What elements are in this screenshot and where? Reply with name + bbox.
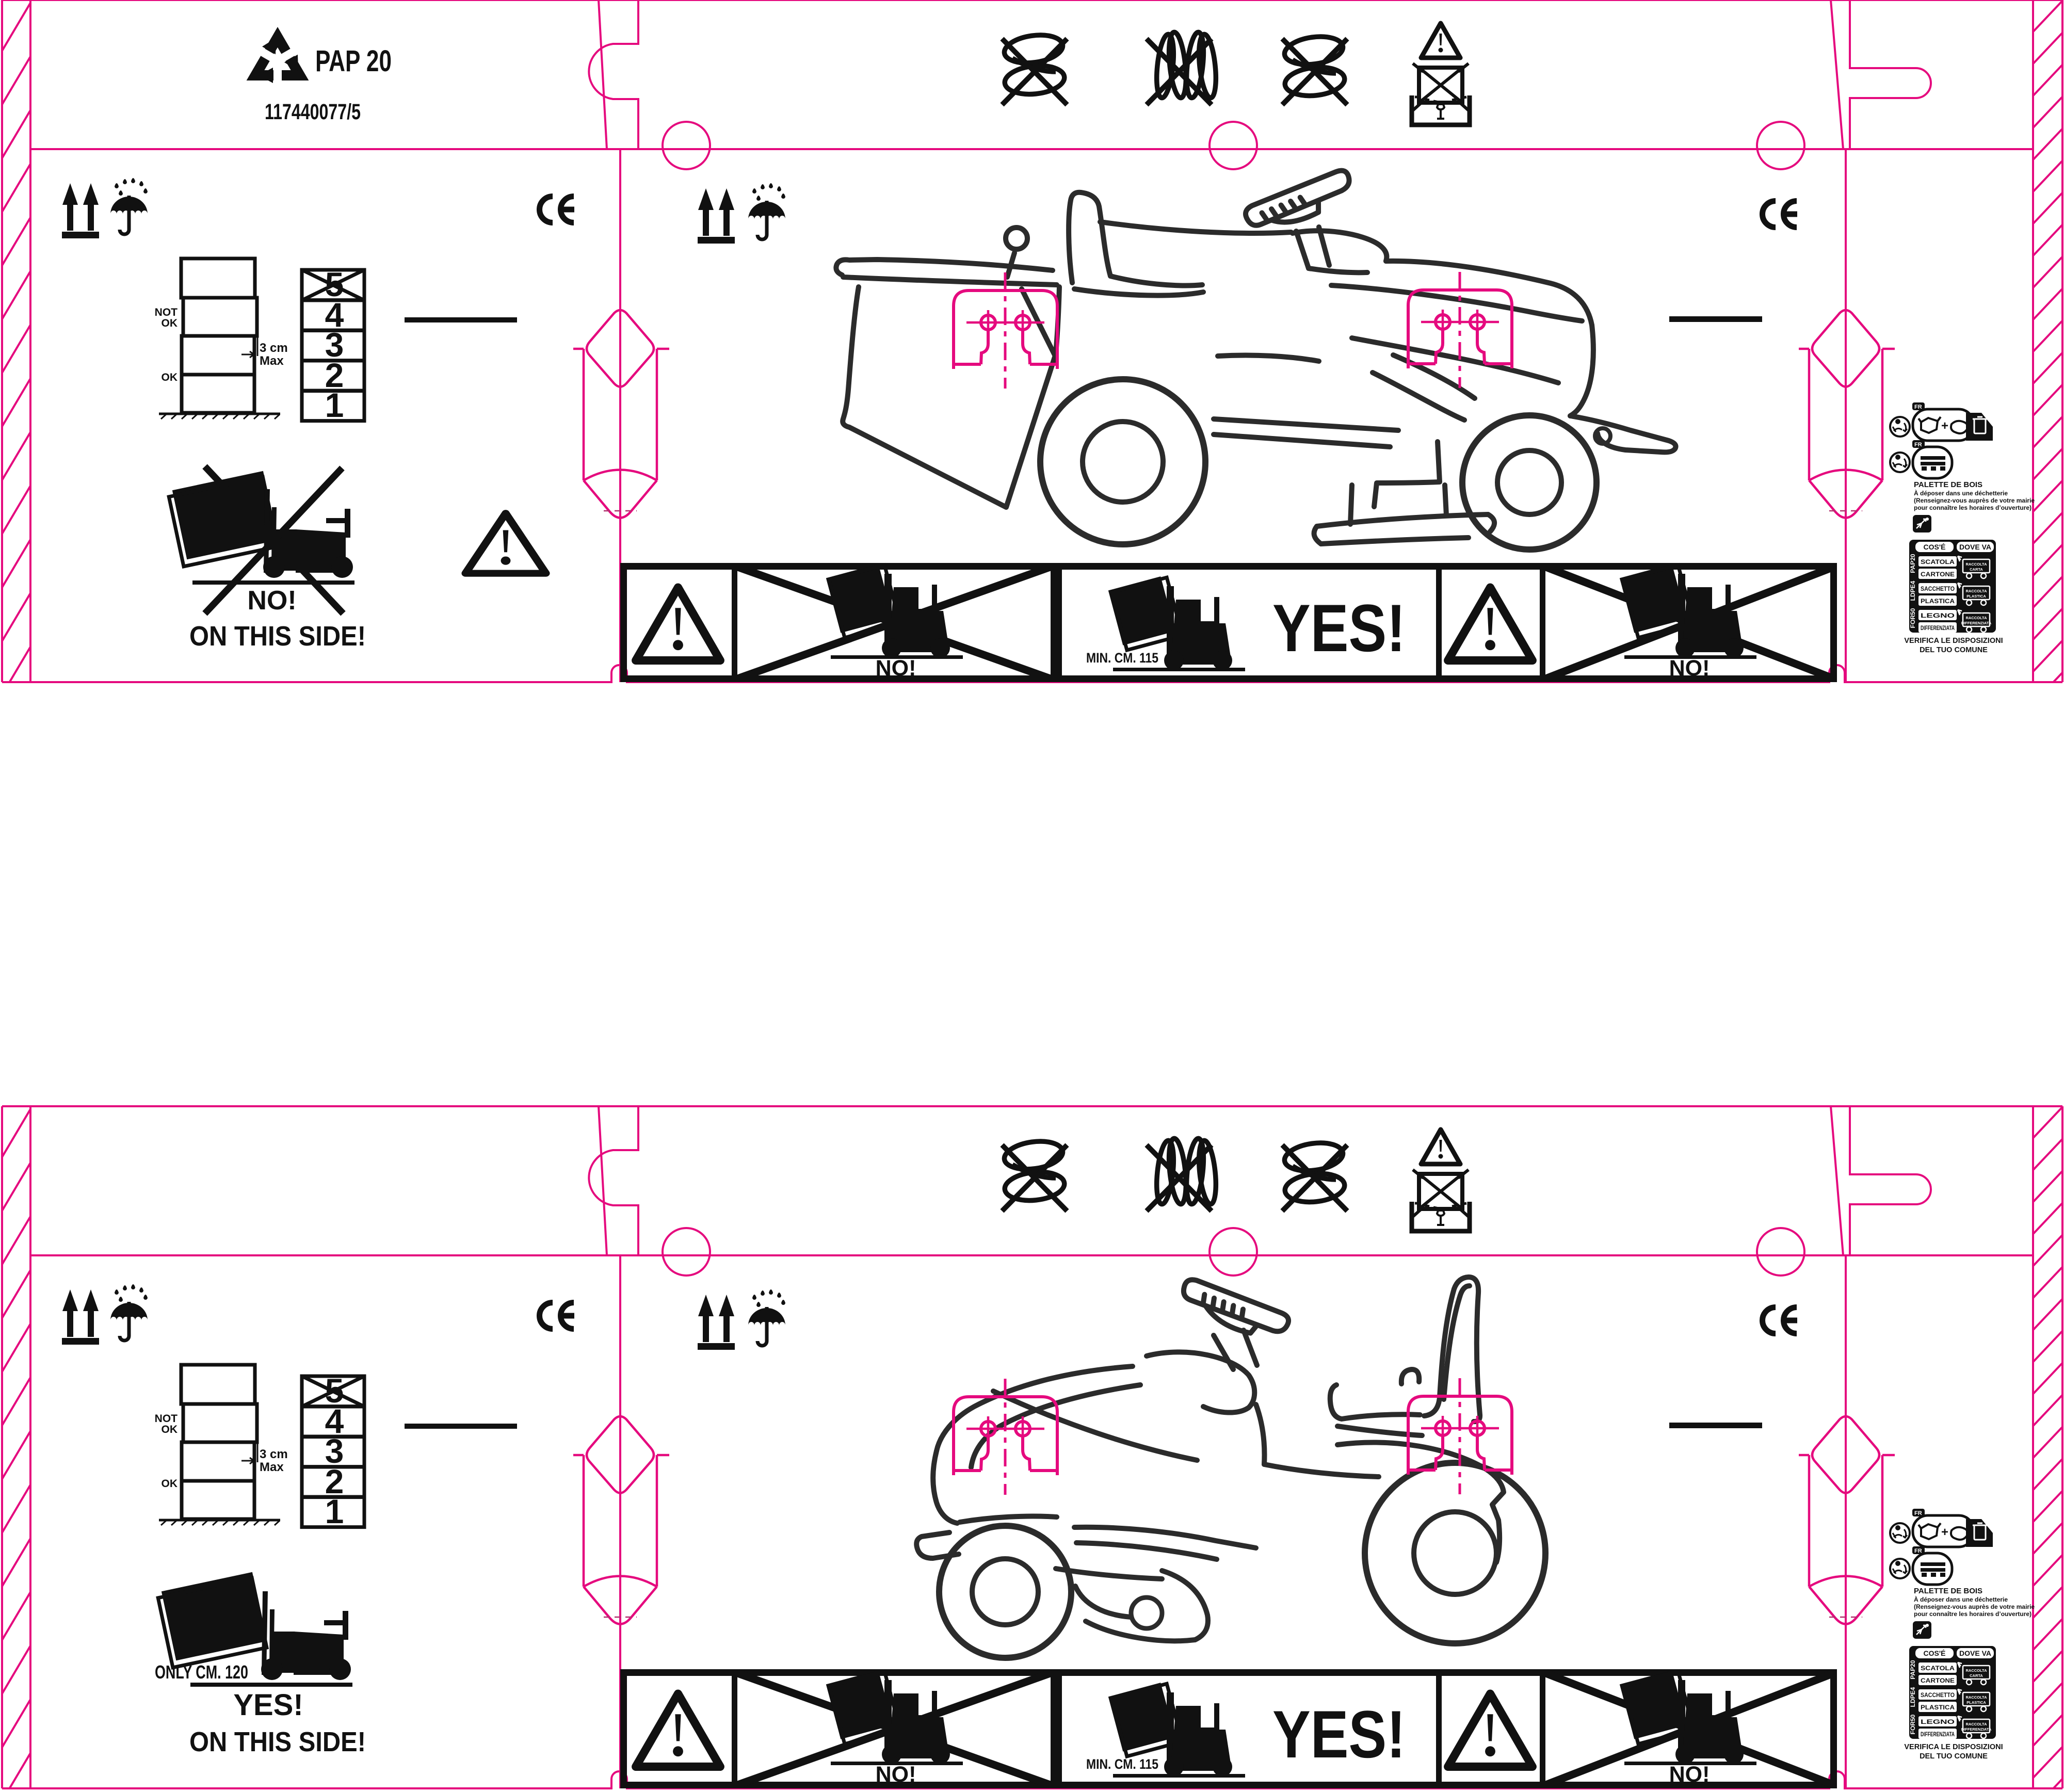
svg-text:DOVE VA: DOVE VA [1959, 543, 1991, 551]
svg-text:FOR50: FOR50 [1909, 608, 1916, 628]
svg-text:ON THIS SIDE!: ON THIS SIDE! [189, 621, 366, 652]
svg-text:(Renseignez-vous auprès de vot: (Renseignez-vous auprès de votre mairie [1914, 497, 2035, 504]
svg-text:DEL TUO COMUNE: DEL TUO COMUNE [1920, 646, 1988, 654]
svg-text:117440077/5: 117440077/5 [265, 100, 361, 124]
svg-text:PAP20: PAP20 [1909, 554, 1916, 573]
svg-text:SACCHETTO: SACCHETTO [1921, 586, 1955, 592]
svg-text:MIN. CM. 115: MIN. CM. 115 [1086, 650, 1158, 666]
svg-text:VERIFICA LE DISPOSIZIONI: VERIFICA LE DISPOSIZIONI [1904, 637, 2003, 645]
svg-text:PALETTE DE BOIS: PALETTE DE BOIS [1914, 480, 1982, 489]
svg-text:PAP 20: PAP 20 [315, 44, 392, 78]
svg-text:ON THIS SIDE!: ON THIS SIDE! [189, 1726, 366, 1757]
svg-text:RACCOLTA: RACCOLTA [1966, 562, 1988, 567]
svg-text:LEGNO: LEGNO [1921, 613, 1955, 619]
svg-text:RACCOLTA: RACCOLTA [1966, 589, 1988, 593]
svg-text:FR: FR [1914, 404, 1922, 410]
svg-text:CARTONE: CARTONE [1921, 572, 1955, 578]
svg-text:DIFFERENZIATA: DIFFERENZIATA [1921, 625, 1955, 632]
svg-text:ONLY CM. 120: ONLY CM. 120 [155, 1661, 248, 1683]
svg-text:NO!: NO! [1669, 656, 1710, 681]
svg-text:3 cm: 3 cm [260, 341, 288, 355]
svg-text:SCATOLA: SCATOLA [1921, 559, 1955, 566]
svg-text:+: + [1941, 419, 1948, 433]
svg-text:LDPE4: LDPE4 [1909, 580, 1916, 601]
svg-text:FR: FR [1914, 442, 1922, 448]
svg-text:À déposer dans une déchetterie: À déposer dans une déchetterie [1914, 489, 2008, 497]
svg-text:OK: OK [162, 372, 178, 383]
svg-text:YES!: YES! [233, 1688, 303, 1722]
svg-text:YES!: YES! [1272, 590, 1406, 666]
svg-text:COS'É: COS'É [1923, 543, 1945, 551]
svg-text:RACCOLTA: RACCOLTA [1966, 616, 1988, 620]
svg-text:pour connaître les horaires d’: pour connaître les horaires d’ouverture) [1914, 504, 2031, 511]
svg-text:NO!: NO! [876, 656, 916, 681]
svg-text:Max: Max [260, 354, 284, 368]
svg-text:DIFFERENZIATA: DIFFERENZIATA [1961, 621, 1992, 625]
svg-text:PLASTICA: PLASTICA [1921, 599, 1955, 605]
svg-text:NO!: NO! [247, 586, 296, 616]
svg-text:PLASTICA: PLASTICA [1966, 594, 1986, 599]
svg-text:CARTA: CARTA [1970, 567, 1983, 572]
svg-text:1: 1 [325, 386, 344, 424]
svg-text:OK: OK [162, 317, 178, 329]
svg-text:NOT: NOT [155, 306, 178, 318]
